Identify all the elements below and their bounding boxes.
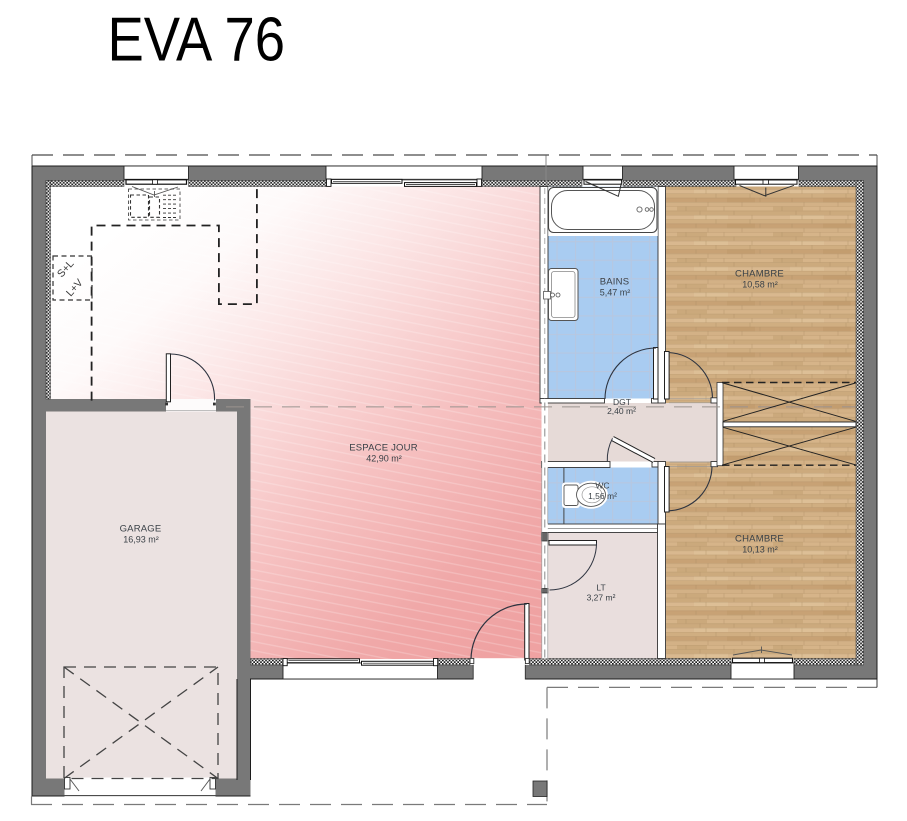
svg-text:10,13 m²: 10,13 m² [742, 545, 778, 555]
svg-text:CHAMBRE: CHAMBRE [735, 534, 784, 545]
svg-text:WC: WC [595, 481, 609, 491]
svg-text:16,93 m²: 16,93 m² [123, 535, 159, 545]
svg-text:CHAMBRE: CHAMBRE [735, 269, 784, 280]
svg-text:5,47 m²: 5,47 m² [600, 288, 631, 298]
svg-text:BAINS: BAINS [600, 277, 630, 288]
svg-text:42,90 m²: 42,90 m² [366, 454, 402, 464]
svg-text:ESPACE JOUR: ESPACE JOUR [349, 443, 418, 454]
svg-text:3,27 m²: 3,27 m² [587, 593, 616, 603]
svg-text:1,56 m²: 1,56 m² [588, 491, 617, 501]
svg-text:LT: LT [596, 583, 605, 593]
svg-text:EVA 76: EVA 76 [108, 6, 286, 75]
svg-text:GARAGE: GARAGE [120, 524, 162, 535]
svg-text:10,58 m²: 10,58 m² [742, 280, 778, 290]
svg-text:2,40 m²: 2,40 m² [607, 406, 636, 416]
